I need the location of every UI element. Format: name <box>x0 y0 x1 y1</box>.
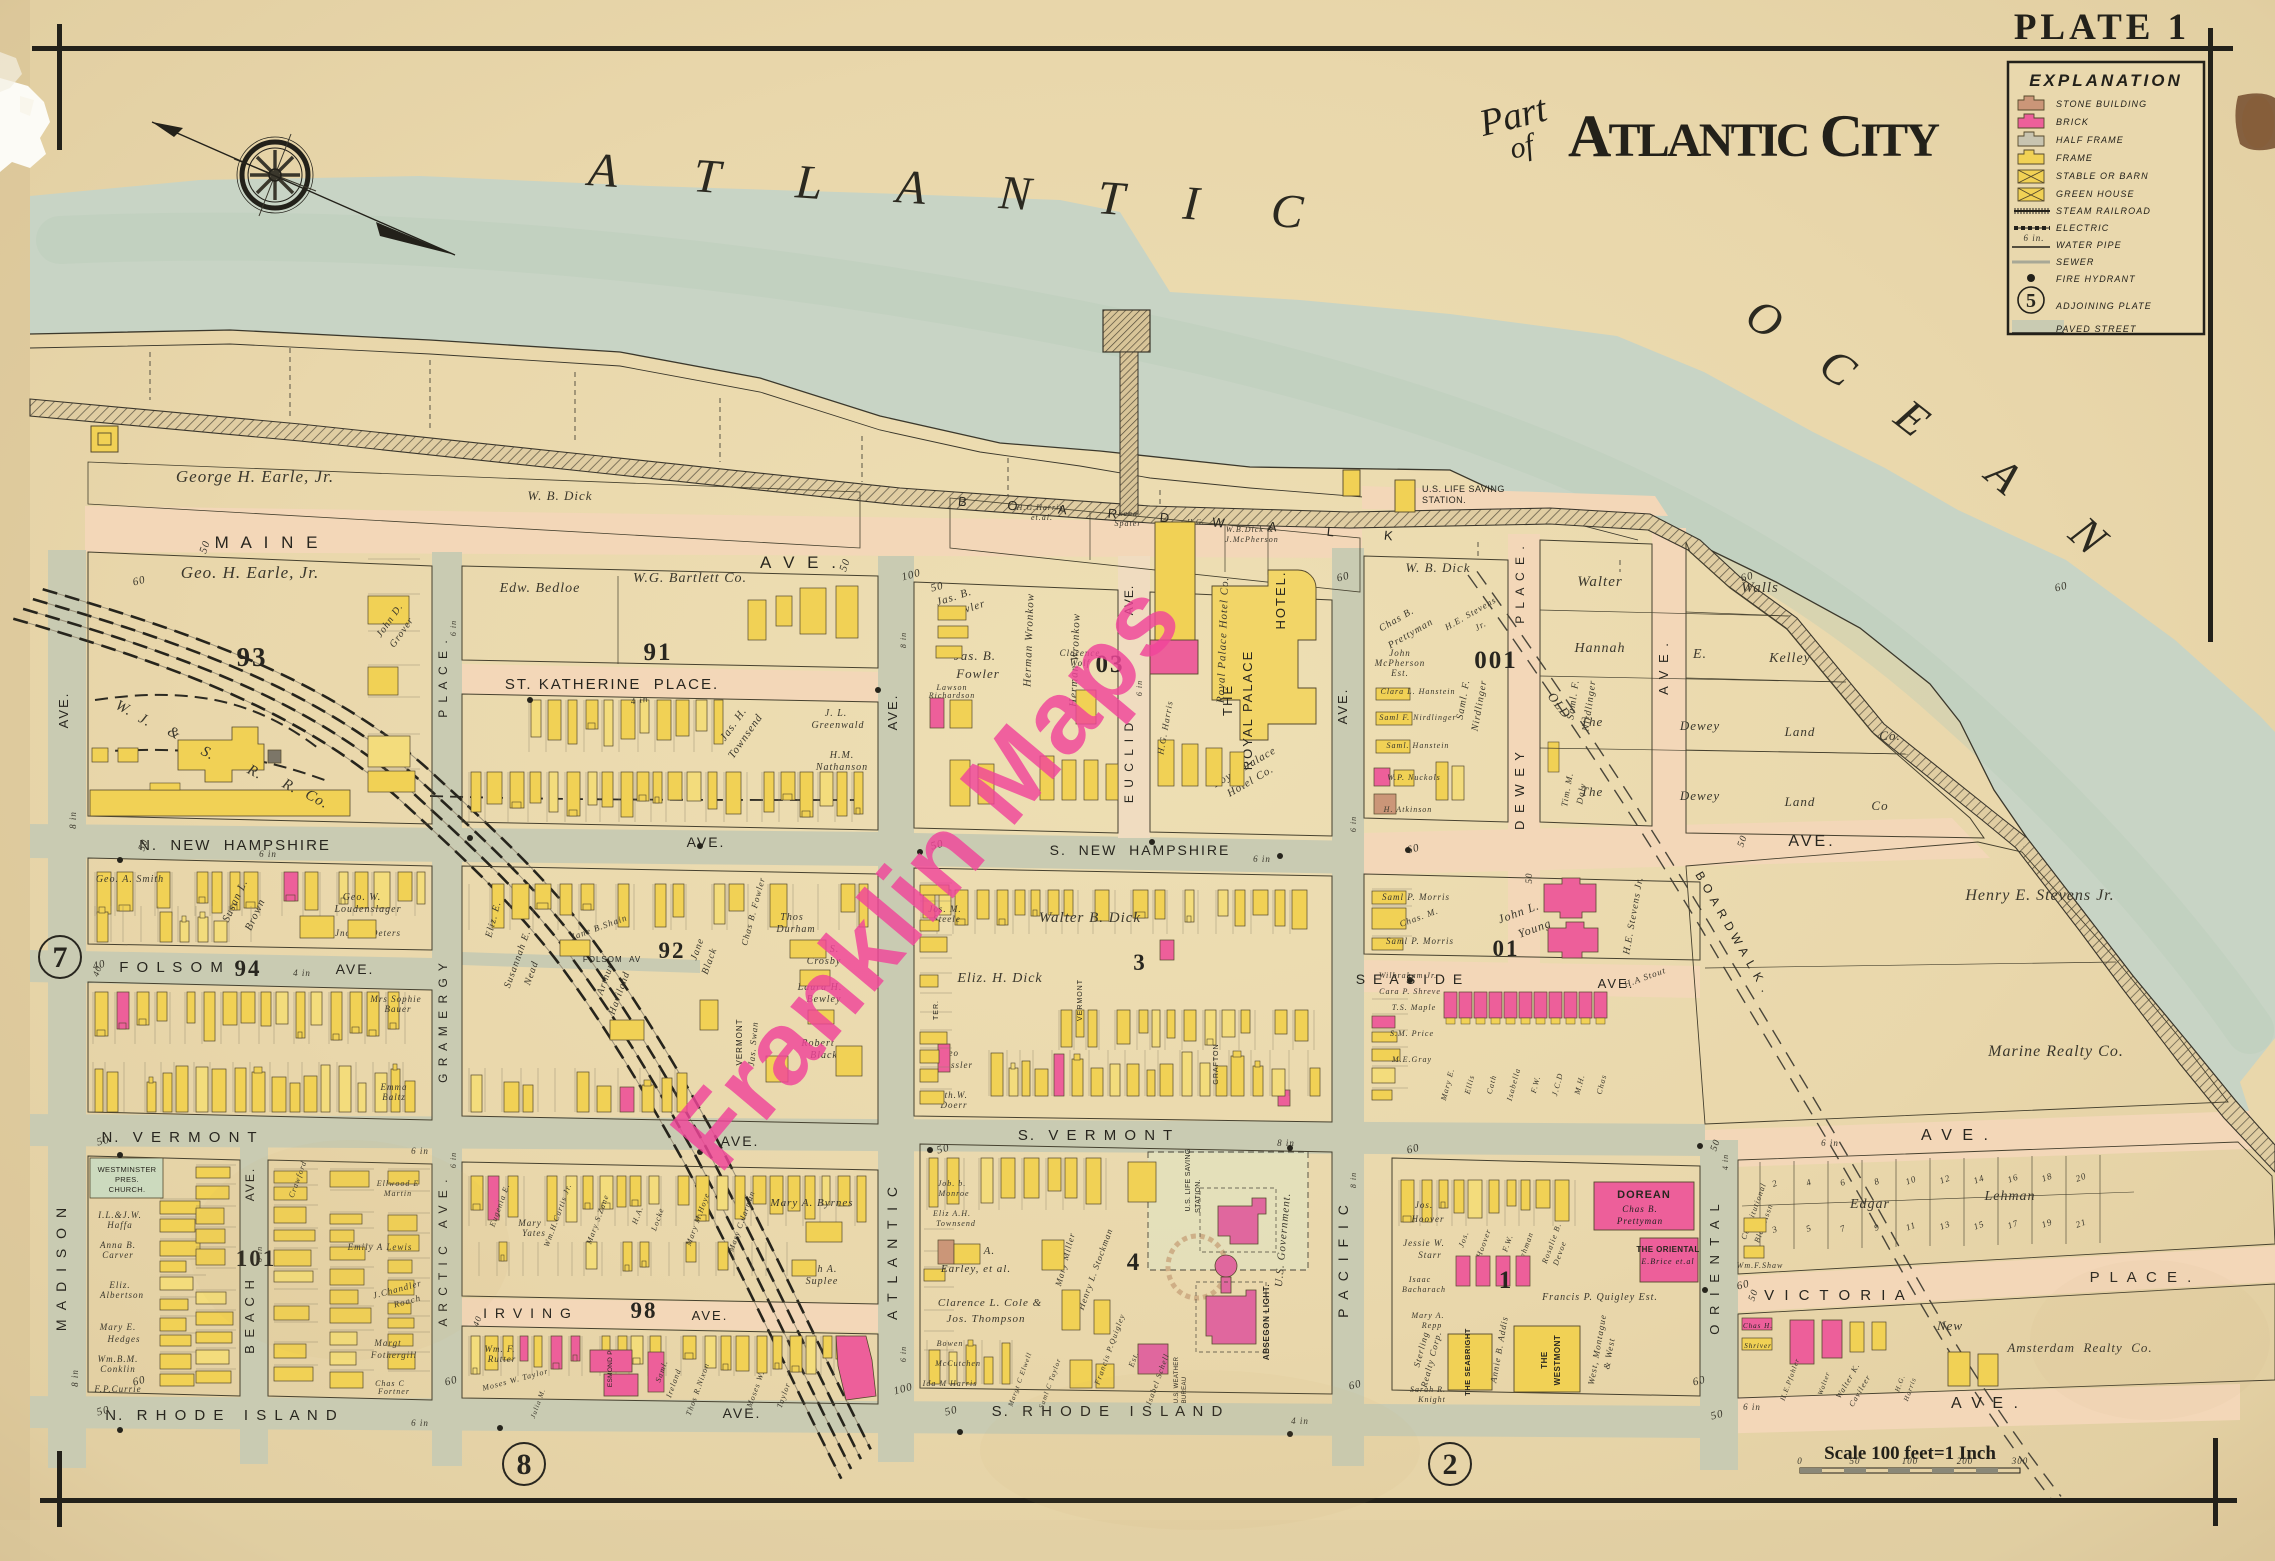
svg-text:6 in: 6 in <box>411 1418 429 1428</box>
svg-text:Mrs Sophie: Mrs Sophie <box>369 994 421 1004</box>
svg-text:6 in: 6 in <box>1821 1138 1839 1148</box>
svg-text:T.S. Maple: T.S. Maple <box>1392 1003 1436 1012</box>
svg-text:Rutter: Rutter <box>487 1354 517 1364</box>
svg-text:6 in.: 6 in. <box>2023 233 2044 243</box>
svg-text:J.McPherson: J.McPherson <box>1225 535 1278 544</box>
svg-text:George H. Earle, Jr.: George H. Earle, Jr. <box>176 467 334 486</box>
svg-text:S. NEW HAMPSHIRE: S. NEW HAMPSHIRE <box>1050 842 1231 858</box>
svg-text:Chas H.: Chas H. <box>1743 1322 1773 1330</box>
svg-text:AVE.: AVE. <box>723 1405 762 1421</box>
svg-text:THE ORIENTAL: THE ORIENTAL <box>1636 1245 1699 1254</box>
svg-text:I.L.&J.W.: I.L.&J.W. <box>97 1210 142 1220</box>
svg-text:200: 200 <box>1957 1456 1974 1466</box>
svg-text:A: A <box>584 143 621 198</box>
svg-text:J. L.: J. L. <box>825 708 848 719</box>
svg-text:Walter: Walter <box>1577 574 1622 590</box>
svg-text:WESTMINSTER: WESTMINSTER <box>98 1165 157 1174</box>
svg-text:6 in: 6 in <box>1349 816 1358 832</box>
svg-text:6 in: 6 in <box>259 849 277 859</box>
svg-text:Jos. Thompson: Jos. Thompson <box>946 1313 1025 1325</box>
svg-text:Isaac: Isaac <box>1408 1275 1431 1284</box>
svg-text:Lehman: Lehman <box>1983 1189 2035 1204</box>
svg-text:AVE.: AVE. <box>1598 976 1635 991</box>
svg-text:B: B <box>957 494 967 510</box>
svg-text:McPherson: McPherson <box>1374 658 1426 668</box>
svg-text:U.S. LIFE SAVING: U.S. LIFE SAVING <box>1422 484 1505 494</box>
svg-text:S.M. Price: S.M. Price <box>1390 1029 1434 1038</box>
svg-text:THE SEABRIGHT: THE SEABRIGHT <box>1463 1328 1472 1396</box>
svg-text:0: 0 <box>1797 1456 1803 1466</box>
svg-text:Chas B.: Chas B. <box>1622 1204 1658 1214</box>
svg-text:Geo. H. Earle, Jr.: Geo. H. Earle, Jr. <box>181 563 319 582</box>
svg-text:Richardson: Richardson <box>928 691 976 700</box>
svg-text:SEWER: SEWER <box>2056 257 2095 267</box>
svg-text:Mary A. Byrnes: Mary A. Byrnes <box>769 1197 853 1209</box>
svg-text:Walter B. Dick: Walter B. Dick <box>1039 910 1141 926</box>
svg-text:McCutchen: McCutchen <box>934 1359 981 1368</box>
svg-text:AVE.: AVE. <box>336 961 375 977</box>
svg-text:P L A C E .: P L A C E . <box>1513 544 1527 623</box>
svg-text:S. V E R M O N T: S. V E R M O N T <box>1018 1127 1174 1144</box>
svg-text:et.al.: et.al. <box>1031 513 1053 522</box>
svg-text:Baltz: Baltz <box>382 1092 406 1102</box>
svg-text:100: 100 <box>1902 1456 1919 1466</box>
svg-text:ST. KATHERINE PLACE.: ST. KATHERINE PLACE. <box>505 676 719 693</box>
svg-text:Thos: Thos <box>780 912 803 923</box>
svg-text:W. B. Dick: W. B. Dick <box>1405 560 1470 575</box>
svg-text:D E W E Y: D E W E Y <box>1512 750 1527 830</box>
svg-text:U.S. LIFE SAVING: U.S. LIFE SAVING <box>1185 1148 1192 1211</box>
svg-text:Eliz A.H.: Eliz A.H. <box>932 1209 971 1218</box>
svg-text:94: 94 <box>235 956 262 981</box>
svg-text:L: L <box>793 155 824 210</box>
svg-text:Henry E. Stevens Jr.: Henry E. Stevens Jr. <box>1964 887 2114 904</box>
svg-text:PLATE 1: PLATE 1 <box>2014 7 2190 48</box>
svg-text:STONE BUILDING: STONE BUILDING <box>2056 99 2147 109</box>
svg-text:Ida M Harris: Ida M Harris <box>922 1379 978 1388</box>
svg-text:Mary A.: Mary A. <box>1410 1311 1444 1320</box>
svg-text:Spater: Spater <box>1115 519 1142 528</box>
svg-text:1: 1 <box>1499 1267 1514 1294</box>
svg-text:Wm. F.: Wm. F. <box>484 1344 515 1354</box>
svg-text:STATION.: STATION. <box>1195 1179 1202 1213</box>
svg-text:HOTEL.: HOTEL. <box>1273 571 1288 630</box>
svg-text:W. B. Dick: W. B. Dick <box>527 488 592 503</box>
svg-text:Starr: Starr <box>1418 1250 1442 1260</box>
svg-text:The: The <box>1581 784 1604 799</box>
svg-text:6 in: 6 in <box>1253 854 1271 864</box>
svg-text:C: C <box>1269 184 1306 239</box>
svg-text:CHURCH.: CHURCH. <box>109 1185 146 1194</box>
svg-text:Jos.: Jos. <box>1415 1200 1433 1210</box>
svg-text:Wm.F.Shaw: Wm.F.Shaw <box>1737 1261 1784 1270</box>
svg-text:AVE.: AVE. <box>692 1308 729 1323</box>
svg-text:Hannah: Hannah <box>1573 641 1625 656</box>
svg-text:Bauer: Bauer <box>385 1004 412 1014</box>
svg-text:Co: Co <box>1871 798 1888 813</box>
svg-text:2: 2 <box>1443 1448 1458 1481</box>
svg-text:Lena: Lena <box>1117 509 1138 518</box>
svg-text:P A C I F I C: P A C I F I C <box>1335 1202 1351 1318</box>
svg-text:EXPLANATION: EXPLANATION <box>2029 71 2183 90</box>
svg-text:Eliz.: Eliz. <box>108 1280 130 1290</box>
svg-text:R: R <box>1107 506 1118 522</box>
svg-text:92: 92 <box>659 938 686 963</box>
svg-text:5: 5 <box>2026 290 2036 312</box>
svg-text:Anna B.: Anna B. <box>99 1240 136 1250</box>
svg-text:O R I E N T A L: O R I E N T A L <box>1707 1201 1722 1334</box>
svg-text:H.M.: H.M. <box>829 750 855 761</box>
svg-text:Haffa: Haffa <box>106 1220 133 1230</box>
svg-text:O: O <box>1007 498 1019 514</box>
svg-text:TER.: TER. <box>933 1000 940 1020</box>
svg-text:E U C L I D: E U C L I D <box>1122 721 1136 803</box>
svg-text:P L A C E .: P L A C E . <box>436 638 450 717</box>
svg-text:Saml. Hanstein: Saml. Hanstein <box>1387 741 1450 750</box>
svg-text:Carver: Carver <box>102 1250 134 1260</box>
svg-text:Saml F. Nirdlinger: Saml F. Nirdlinger <box>1379 713 1456 722</box>
svg-text:93: 93 <box>237 642 268 672</box>
svg-text:Geo. A. Smith: Geo. A. Smith <box>96 874 164 885</box>
svg-text:Dewey: Dewey <box>1679 788 1720 803</box>
svg-text:Fortner: Fortner <box>377 1387 410 1396</box>
svg-text:FOLSOM AV: FOLSOM AV <box>583 955 641 964</box>
svg-text:Prettyman: Prettyman <box>1616 1216 1663 1226</box>
svg-text:E.: E. <box>1692 647 1707 662</box>
svg-text:Est.: Est. <box>1390 668 1409 678</box>
svg-text:The: The <box>1581 714 1604 729</box>
svg-text:7: 7 <box>53 941 68 974</box>
svg-text:M.E.Gray: M.E.Gray <box>1391 1055 1432 1064</box>
svg-text:Eliz. H. Dick: Eliz. H. Dick <box>956 971 1042 986</box>
svg-text:Mary: Mary <box>517 1218 542 1228</box>
svg-text:Greenwald: Greenwald <box>811 720 864 731</box>
svg-text:V I C T O R I A: V I C T O R I A <box>1764 1287 1908 1304</box>
svg-text:3: 3 <box>1133 950 1147 975</box>
svg-text:N. V E R M O N T: N. V E R M O N T <box>101 1129 258 1146</box>
svg-text:Land: Land <box>1784 724 1816 739</box>
svg-text:E.Brice et.al: E.Brice et.al <box>1640 1257 1694 1266</box>
svg-text:STEAM RAILROAD: STEAM RAILROAD <box>2056 206 2151 216</box>
svg-text:Saml P. Morris: Saml P. Morris <box>1382 892 1450 902</box>
svg-text:6 in: 6 in <box>449 620 458 636</box>
svg-text:M A I N E: M A I N E <box>215 533 322 552</box>
svg-text:Townsend: Townsend <box>936 1219 976 1228</box>
svg-text:BRICK: BRICK <box>2056 117 2089 127</box>
svg-text:A V E .: A V E . <box>1951 1395 2021 1412</box>
svg-text:8 in: 8 in <box>1349 1172 1358 1188</box>
svg-text:WESTMONT: WESTMONT <box>1553 1335 1562 1386</box>
svg-text:Dewey: Dewey <box>1679 718 1720 733</box>
svg-text:4: 4 <box>1127 1249 1142 1276</box>
svg-text:GRAFTON: GRAFTON <box>1213 1043 1220 1084</box>
svg-text:Job. b.: Job. b. <box>938 1179 967 1188</box>
svg-text:PAVED STREET: PAVED STREET <box>2056 324 2137 334</box>
svg-text:Bacharach: Bacharach <box>1402 1285 1446 1294</box>
svg-text:Jessie W.: Jessie W. <box>1403 1238 1445 1248</box>
svg-text:A V E .: A V E . <box>760 553 840 572</box>
svg-text:Monroe: Monroe <box>937 1189 969 1198</box>
svg-text:Suplee: Suplee <box>806 1276 839 1287</box>
svg-text:G R A M E R G Y: G R A M E R G Y <box>436 961 450 1083</box>
svg-text:Repp: Repp <box>1421 1321 1442 1330</box>
svg-text:Hoover: Hoover <box>1411 1214 1445 1224</box>
svg-text:Marine Realty Co.: Marine Realty Co. <box>1987 1043 2124 1060</box>
svg-text:New: New <box>1936 1318 1963 1333</box>
svg-text:50: 50 <box>1524 873 1534 884</box>
svg-text:Land: Land <box>1784 794 1816 809</box>
svg-text:I R V I N G: I R V I N G <box>483 1305 573 1321</box>
svg-text:8 in: 8 in <box>70 1369 80 1387</box>
svg-text:001: 001 <box>1474 647 1518 674</box>
svg-text:AVE.: AVE. <box>687 834 726 850</box>
svg-text:8 in: 8 in <box>68 811 78 829</box>
svg-text:Saml P. Morris: Saml P. Morris <box>1386 936 1454 946</box>
svg-text:Emma: Emma <box>380 1082 408 1092</box>
svg-text:ABSEGON LIGHT.: ABSEGON LIGHT. <box>1262 1284 1271 1360</box>
svg-text:STABLE OR BARN: STABLE OR BARN <box>2056 171 2149 181</box>
svg-text:Bowen: Bowen <box>937 1339 964 1348</box>
svg-text:VERMONT: VERMONT <box>1077 979 1084 1021</box>
svg-text:AVE.: AVE. <box>1335 688 1350 725</box>
svg-text:W.P. Nuckols: W.P. Nuckols <box>1387 773 1441 782</box>
svg-text:300: 300 <box>2011 1456 2029 1466</box>
svg-text:Geo. W.: Geo. W. <box>343 892 382 903</box>
svg-text:Albertson: Albertson <box>99 1290 144 1300</box>
svg-text:A: A <box>892 160 929 215</box>
svg-text:Edgar: Edgar <box>1849 1197 1890 1212</box>
svg-text:4 in: 4 in <box>293 968 311 978</box>
svg-text:Clarence L. Cole &: Clarence L. Cole & <box>938 1297 1042 1309</box>
svg-text:AVE.: AVE. <box>1788 833 1835 850</box>
svg-text:Nathanson: Nathanson <box>815 762 868 773</box>
svg-text:Hedges: Hedges <box>107 1334 141 1344</box>
svg-text:Shriver: Shriver <box>1744 1342 1772 1350</box>
svg-text:50: 50 <box>1850 1456 1861 1466</box>
svg-text:AVE.: AVE. <box>56 692 71 729</box>
svg-text:H. Atkinson: H. Atkinson <box>1383 805 1433 814</box>
svg-text:Conklin: Conklin <box>100 1364 136 1374</box>
svg-text:F O L S O M: F O L S O M <box>119 959 225 976</box>
svg-text:WATER PIPE: WATER PIPE <box>2056 240 2122 250</box>
svg-text:8 in: 8 in <box>899 632 908 648</box>
svg-text:Francis P. Quigley Est.: Francis P. Quigley Est. <box>1541 1292 1658 1303</box>
svg-text:6 in: 6 in <box>899 1346 908 1362</box>
svg-text:8: 8 <box>517 1448 532 1481</box>
svg-text:M A D I S O N: M A D I S O N <box>53 1205 69 1331</box>
svg-text:Sarah R.: Sarah R. <box>1410 1385 1446 1394</box>
svg-text:STATION.: STATION. <box>1422 495 1466 505</box>
svg-text:01: 01 <box>1493 936 1520 961</box>
svg-text:PRES.: PRES. <box>115 1175 139 1184</box>
svg-text:A V E .: A V E . <box>1656 641 1671 695</box>
svg-text:H.G.Harris: H.G.Harris <box>1016 503 1064 512</box>
svg-text:ESMOND P.: ESMOND P. <box>607 1349 614 1387</box>
svg-text:A V E .: A V E . <box>1921 1127 1991 1144</box>
svg-text:Fowler: Fowler <box>955 666 1000 681</box>
svg-text:ADJOINING PLATE: ADJOINING PLATE <box>2055 301 2152 311</box>
svg-text:Cara P. Shreve: Cara P. Shreve <box>1379 987 1441 996</box>
svg-text:D: D <box>1159 510 1170 526</box>
svg-text:Clara L. Hanstein: Clara L. Hanstein <box>1380 687 1455 696</box>
svg-text:Earley, et al.: Earley, et al. <box>940 1263 1011 1275</box>
svg-text:Mary E.: Mary E. <box>99 1322 137 1332</box>
svg-text:DOREAN: DOREAN <box>1617 1189 1671 1201</box>
svg-text:GREEN HOUSE: GREEN HOUSE <box>2056 189 2135 199</box>
svg-text:THE: THE <box>1540 1351 1549 1369</box>
svg-text:98: 98 <box>631 1298 658 1323</box>
svg-text:6 in: 6 in <box>1743 1402 1761 1412</box>
svg-text:Knight: Knight <box>1417 1395 1446 1404</box>
svg-text:John: John <box>1389 648 1411 658</box>
svg-text:HALF FRAME: HALF FRAME <box>2056 135 2124 145</box>
svg-text:N. NEW HAMPSHIRE: N. NEW HAMPSHIRE <box>139 837 331 854</box>
svg-text:Co.: Co. <box>1879 728 1900 743</box>
svg-text:FIRE HYDRANT: FIRE HYDRANT <box>2056 274 2136 284</box>
svg-text:91: 91 <box>644 639 673 666</box>
svg-text:N. R H O D E I S L A N D: N. R H O D E I S L A N D <box>105 1407 339 1424</box>
svg-text:W: W <box>1212 514 1226 530</box>
svg-text:Edw. Bedloe: Edw. Bedloe <box>499 581 581 596</box>
svg-text:Wm.B.M.: Wm.B.M. <box>98 1354 139 1364</box>
svg-text:FRAME: FRAME <box>2056 153 2093 163</box>
svg-text:AVE.: AVE. <box>885 694 900 731</box>
svg-text:Yates: Yates <box>522 1228 546 1238</box>
svg-text:A T L A N T I C: A T L A N T I C <box>884 1184 900 1320</box>
svg-text:W.G. Bartlett Co.: W.G. Bartlett Co. <box>633 571 747 586</box>
svg-text:Kelley: Kelley <box>1768 651 1811 666</box>
svg-text:L: L <box>1326 524 1335 540</box>
svg-text:Loudenslager: Loudenslager <box>334 904 402 915</box>
svg-text:ELECTRIC: ELECTRIC <box>2056 223 2109 233</box>
svg-text:4 in: 4 in <box>1721 1154 1730 1170</box>
